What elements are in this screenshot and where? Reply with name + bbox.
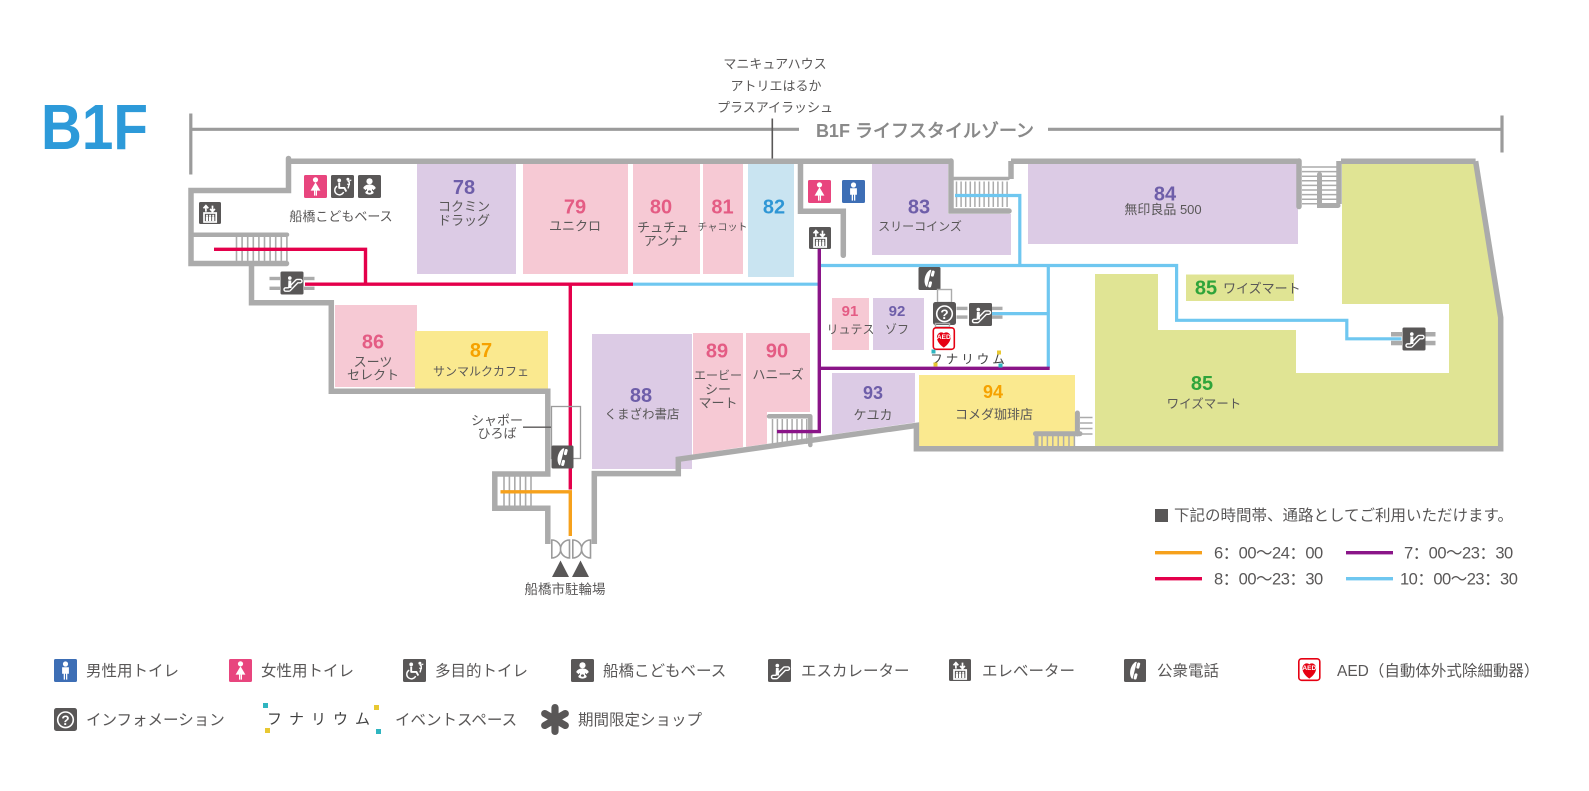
- svg-text:プラスアイラッシュ: プラスアイラッシュ: [717, 100, 833, 115]
- svg-text:女性用トイレ: 女性用トイレ: [261, 661, 354, 680]
- svg-text:94: 94: [983, 382, 1003, 402]
- svg-text:くまざわ書店: くまざわ書店: [604, 407, 679, 422]
- svg-text:アトリエはるか: アトリエはるか: [730, 79, 821, 94]
- svg-text:期間限定ショップ: 期間限定ショップ: [578, 711, 703, 729]
- svg-text:ワイズマート: ワイズマート: [1167, 396, 1242, 411]
- svg-text:85: 85: [1195, 278, 1217, 300]
- svg-text:多目的トイレ: 多目的トイレ: [435, 662, 528, 680]
- svg-text:B1F ライフスタイルゾーン: B1F ライフスタイルゾーン: [816, 121, 1034, 141]
- svg-text:チュチュ: チュチュ: [637, 220, 689, 235]
- svg-text:サンマルクカフェ: サンマルクカフェ: [433, 365, 529, 379]
- svg-text:ユニクロ: ユニクロ: [549, 219, 601, 234]
- svg-text:船橋こどもベース: 船橋こどもベース: [603, 662, 726, 680]
- svg-text:79: 79: [564, 197, 586, 219]
- svg-text:93: 93: [863, 383, 883, 403]
- svg-text:87: 87: [470, 340, 492, 362]
- svg-text:83: 83: [908, 197, 930, 219]
- svg-text:92: 92: [889, 303, 906, 320]
- svg-text:エスカレーター: エスカレーター: [801, 662, 910, 680]
- svg-text:スリーコインズ: スリーコインズ: [878, 219, 962, 234]
- svg-text:ケユカ: ケユカ: [853, 408, 892, 423]
- svg-text:船橋市駐輪場: 船橋市駐輪場: [525, 581, 606, 597]
- svg-text:イベントスペース: イベントスペース: [395, 712, 517, 729]
- svg-text:エレベーター: エレベーター: [982, 662, 1075, 680]
- svg-text:エービー: エービー: [694, 369, 742, 383]
- svg-text:コメダ珈琲店: コメダ珈琲店: [955, 407, 1033, 422]
- svg-text:ハニーズ: ハニーズ: [752, 367, 803, 382]
- svg-text:セレクト: セレクト: [347, 367, 399, 382]
- svg-text:85: 85: [1191, 373, 1213, 395]
- svg-text:6：00～24：00: 6：00～24：00: [1214, 545, 1323, 563]
- svg-text:ドラッグ: ドラッグ: [438, 213, 490, 228]
- svg-text:コクミン: コクミン: [438, 199, 490, 214]
- svg-text:フナリウム: フナリウム: [930, 353, 1008, 367]
- svg-text:81: 81: [711, 197, 733, 219]
- svg-text:AED（自動体外式除細動器）: AED（自動体外式除細動器）: [1337, 662, 1539, 680]
- svg-text:インフォメーション: インフォメーション: [86, 712, 225, 729]
- svg-text:船橋こどもベース: 船橋こどもベース: [289, 209, 392, 224]
- svg-text:ワイズマート: ワイズマート: [1223, 281, 1301, 296]
- svg-text:88: 88: [630, 385, 652, 407]
- svg-text:78: 78: [453, 177, 475, 199]
- svg-text:89: 89: [706, 341, 728, 363]
- svg-text:マニキュアハウス: マニキュアハウス: [723, 57, 826, 72]
- svg-text:80: 80: [650, 197, 672, 219]
- svg-text:86: 86: [362, 332, 384, 354]
- svg-text:下記の時間帯、通路としてご利用いただけます。: 下記の時間帯、通路としてご利用いただけます。: [1174, 507, 1513, 525]
- svg-text:アンナ: アンナ: [644, 234, 682, 249]
- svg-text:公衆電話: 公衆電話: [1157, 662, 1219, 680]
- svg-text:リュテス: リュテス: [826, 323, 874, 337]
- svg-text:10：00～23：30: 10：00～23：30: [1400, 571, 1518, 589]
- svg-text:7：00～23：30: 7：00～23：30: [1404, 545, 1513, 563]
- svg-text:90: 90: [766, 341, 788, 363]
- svg-text:マート: マート: [698, 396, 737, 411]
- svg-text:8：00～23：30: 8：00～23：30: [1214, 571, 1323, 589]
- svg-text:B1F: B1F: [41, 91, 148, 163]
- svg-text:82: 82: [763, 197, 785, 219]
- svg-text:無印良品 500: 無印良品 500: [1124, 202, 1201, 217]
- svg-text:ゾフ: ゾフ: [885, 323, 909, 337]
- svg-text:男性用トイレ: 男性用トイレ: [86, 662, 179, 680]
- svg-text:チャコット: チャコット: [698, 222, 748, 234]
- svg-text:ひろば: ひろば: [477, 426, 516, 441]
- svg-text:フナリウム: フナリウム: [267, 711, 377, 728]
- svg-text:91: 91: [842, 303, 859, 320]
